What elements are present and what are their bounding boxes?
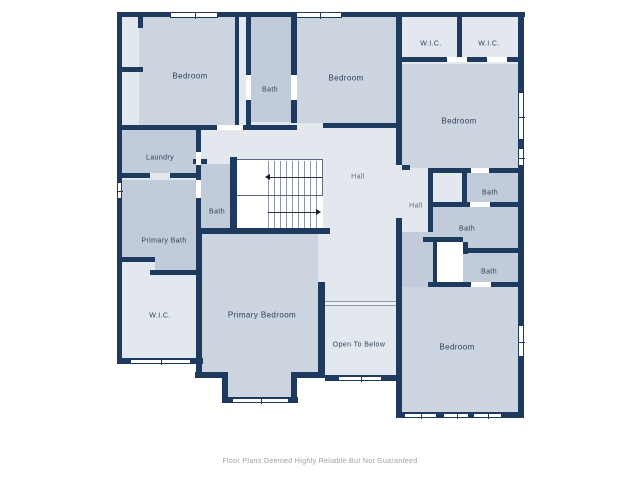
door-opening [471,168,489,173]
room-laundry [122,130,196,173]
wall-segment [291,17,297,123]
room-bedroom-top-middle [297,17,396,123]
room-closet-bottom [437,242,463,282]
wall-segment [196,232,202,363]
window-icon [170,12,218,18]
wall-segment [196,358,202,378]
window-pane-divider [161,360,162,365]
window-icon [296,12,342,18]
wall-segment [433,242,437,287]
stair-arrow-down-icon [316,209,321,215]
room-open-to-below-label: Open To Below [333,342,386,349]
window-icon [473,413,502,418]
room-hall-small-label: Hall [409,203,423,210]
wall-segment [291,372,297,403]
floor-plan: BedroomBathBedroomBedroomW.I.C.W.I.C.Lau… [0,0,640,480]
room-wic-1-label: W.I.C. [420,41,441,48]
room-wic-2-label: W.I.C. [478,41,499,48]
wall-segment [117,257,155,262]
window-pane-divider [457,414,458,419]
room-bedroom-top-left-label: Bedroom [172,72,207,81]
window-icon [232,398,289,403]
wall-segment [318,282,325,378]
room-hall-center-label: Hall [351,174,365,181]
window-icon [130,359,191,364]
room-wic-left-label: W.I.C. [149,313,170,320]
room-laundry-label: Laundry [146,155,174,162]
wall-segment [243,125,297,130]
door-opening [246,75,251,100]
room-bath-top-middle [251,17,291,122]
room-bath-right-mid-label: Bath [459,226,475,233]
stair-arrow-up-icon [265,174,270,180]
wall-segment [170,173,198,178]
exterior-notch [222,403,298,480]
room-primary-bath-label: Primary Bath [141,238,186,245]
wall-segment [150,270,198,275]
room-primary-bath [122,180,198,257]
door-opening [291,75,297,100]
window-icon [518,148,524,166]
room-primary-bedroom-label: Primary Bedroom [228,311,296,320]
room-primary-bath-ext [155,257,198,270]
window-pane-divider [488,414,489,419]
room-primary-bedroom [202,234,318,372]
window-pane-divider [519,158,525,159]
room-bedroom-right-label: Bedroom [441,117,476,126]
door-opening [196,152,201,165]
window-icon [518,325,524,357]
wall-segment [222,372,228,403]
exterior-notch [325,381,397,480]
window-icon [404,413,437,418]
window-pane-divider [195,13,196,19]
wall-segment [396,12,402,165]
window-pane-divider [519,342,525,343]
window-pane-divider [320,13,321,19]
room-bedroom-bottom-right-label: Bedroom [439,343,474,352]
disclaimer-text: Floor Plans Deemed Highly Reliable But N… [0,458,640,465]
wall-segment [518,12,524,418]
door-opening [447,57,467,62]
window-pane-divider [118,191,123,192]
window-pane-divider [519,117,525,118]
wall-segment [428,168,433,232]
wall-segment [462,173,467,207]
wall-segment [396,218,402,418]
open-to-below-railing [325,301,396,306]
window-pane-divider [421,414,422,419]
window-pane-divider [261,399,262,404]
window-icon [518,92,524,140]
door-opening [470,202,490,207]
door-opening [471,282,491,287]
window-pane-divider [361,377,362,382]
wall-segment [457,16,462,62]
wall-segment [402,165,410,170]
window-icon [117,182,122,199]
door-opening [217,125,243,130]
wall-segment [230,157,237,232]
stair-direction-line-upper [270,177,322,178]
wall-segment [235,17,239,125]
room-bath-top-middle-label: Bath [262,87,278,94]
room-bath-right-bottom [463,248,518,282]
stair-treads-upper [268,161,322,195]
wall-segment [246,17,251,125]
wall-segment [463,248,518,253]
room-closet-top [433,173,462,202]
room-bath-right-top-label: Bath [482,190,498,197]
room-bath-right-top [467,173,518,202]
wall-segment [463,242,468,254]
wall-segment [323,123,396,128]
wall-segment [138,17,143,28]
room-bedroom-top-middle-label: Bedroom [328,74,363,83]
room-bath-right-bottom-label: Bath [481,269,497,276]
room-primary-bedroom-bay [228,372,291,397]
window-icon [338,376,382,381]
wall-segment [117,125,217,130]
wall-segment [196,228,330,234]
window-icon [443,413,469,418]
room-bath-center-label: Bath [209,209,225,216]
wall-segment [423,237,463,242]
stair-direction-line-lower [268,212,319,213]
door-opening [196,180,201,198]
door-opening [487,57,507,62]
